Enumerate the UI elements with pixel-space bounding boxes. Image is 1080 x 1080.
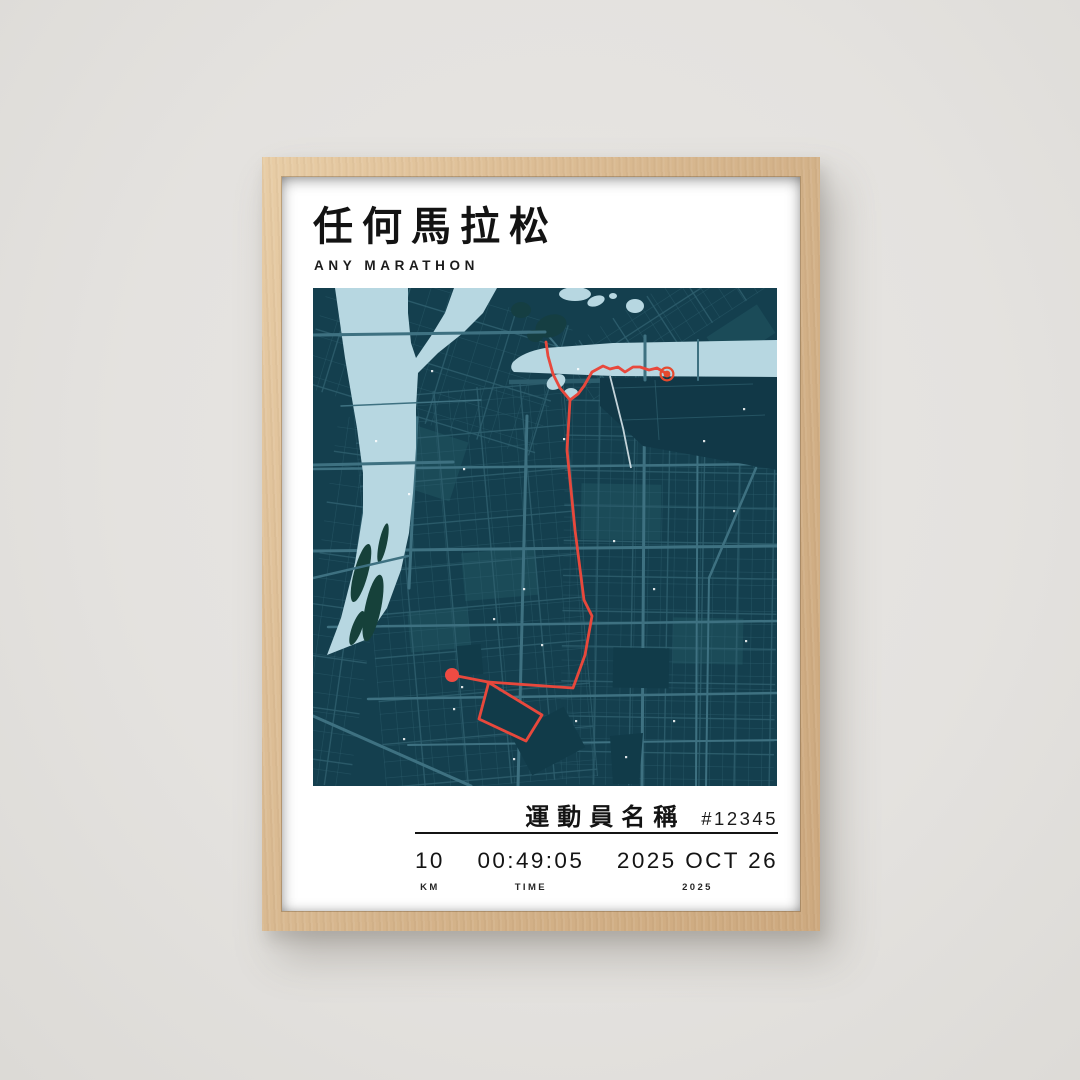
poster: 任何馬拉松 ANY MARATHON 運動員名稱 #12345 10 KM 00… xyxy=(282,177,800,911)
map-speck xyxy=(745,640,747,642)
map-speck xyxy=(575,720,577,722)
map-speck xyxy=(563,438,565,440)
map-speck xyxy=(453,708,455,710)
athlete-bib: #12345 xyxy=(701,808,778,830)
poster-frame: 任何馬拉松 ANY MARATHON 運動員名稱 #12345 10 KM 00… xyxy=(262,157,820,931)
poster-title-latin: ANY MARATHON xyxy=(314,258,479,273)
map-speck xyxy=(523,588,525,590)
map-speck xyxy=(743,408,745,410)
finish-marker xyxy=(664,371,671,378)
map-speck xyxy=(513,758,515,760)
stats-row: 10 KM 00:49:05 TIME 2025 OCT 26 2025 xyxy=(415,848,778,893)
stat-date: 2025 OCT 26 2025 xyxy=(617,848,778,893)
water-pond xyxy=(626,299,644,313)
stat-time-label: TIME xyxy=(477,882,584,893)
athlete-row: 運動員名稱 #12345 xyxy=(525,797,778,832)
route-map xyxy=(313,288,777,786)
divider-line xyxy=(415,832,778,834)
stat-time-value: 00:49:05 xyxy=(477,848,584,874)
start-marker xyxy=(445,668,459,682)
map-speck xyxy=(673,720,675,722)
map-speck xyxy=(733,510,735,512)
stat-time: 00:49:05 TIME xyxy=(477,848,584,893)
map-speck xyxy=(625,756,627,758)
map-speck xyxy=(541,644,543,646)
stat-distance-label: KM xyxy=(415,882,445,893)
stat-distance-value: 10 xyxy=(415,848,445,874)
city-block xyxy=(610,733,643,784)
stat-date-value: 2025 OCT 26 xyxy=(617,848,778,874)
map-speck xyxy=(653,588,655,590)
park-area xyxy=(511,302,531,318)
stat-date-label: 2025 xyxy=(617,882,778,893)
map-speck xyxy=(493,618,495,620)
map-speck xyxy=(375,440,377,442)
map-speck xyxy=(461,686,463,688)
map-speck xyxy=(403,738,405,740)
map-speck xyxy=(613,540,615,542)
athlete-name: 運動員名稱 xyxy=(525,797,685,832)
stat-distance: 10 KM xyxy=(415,848,445,893)
water-pond xyxy=(609,293,617,299)
map-speck xyxy=(431,370,433,372)
poster-title-cjk: 任何馬拉松 xyxy=(313,207,558,247)
map-speck xyxy=(408,493,410,495)
map-speck xyxy=(703,440,705,442)
route-map-canvas xyxy=(313,288,777,786)
map-speck xyxy=(463,468,465,470)
map-speck xyxy=(577,368,579,370)
